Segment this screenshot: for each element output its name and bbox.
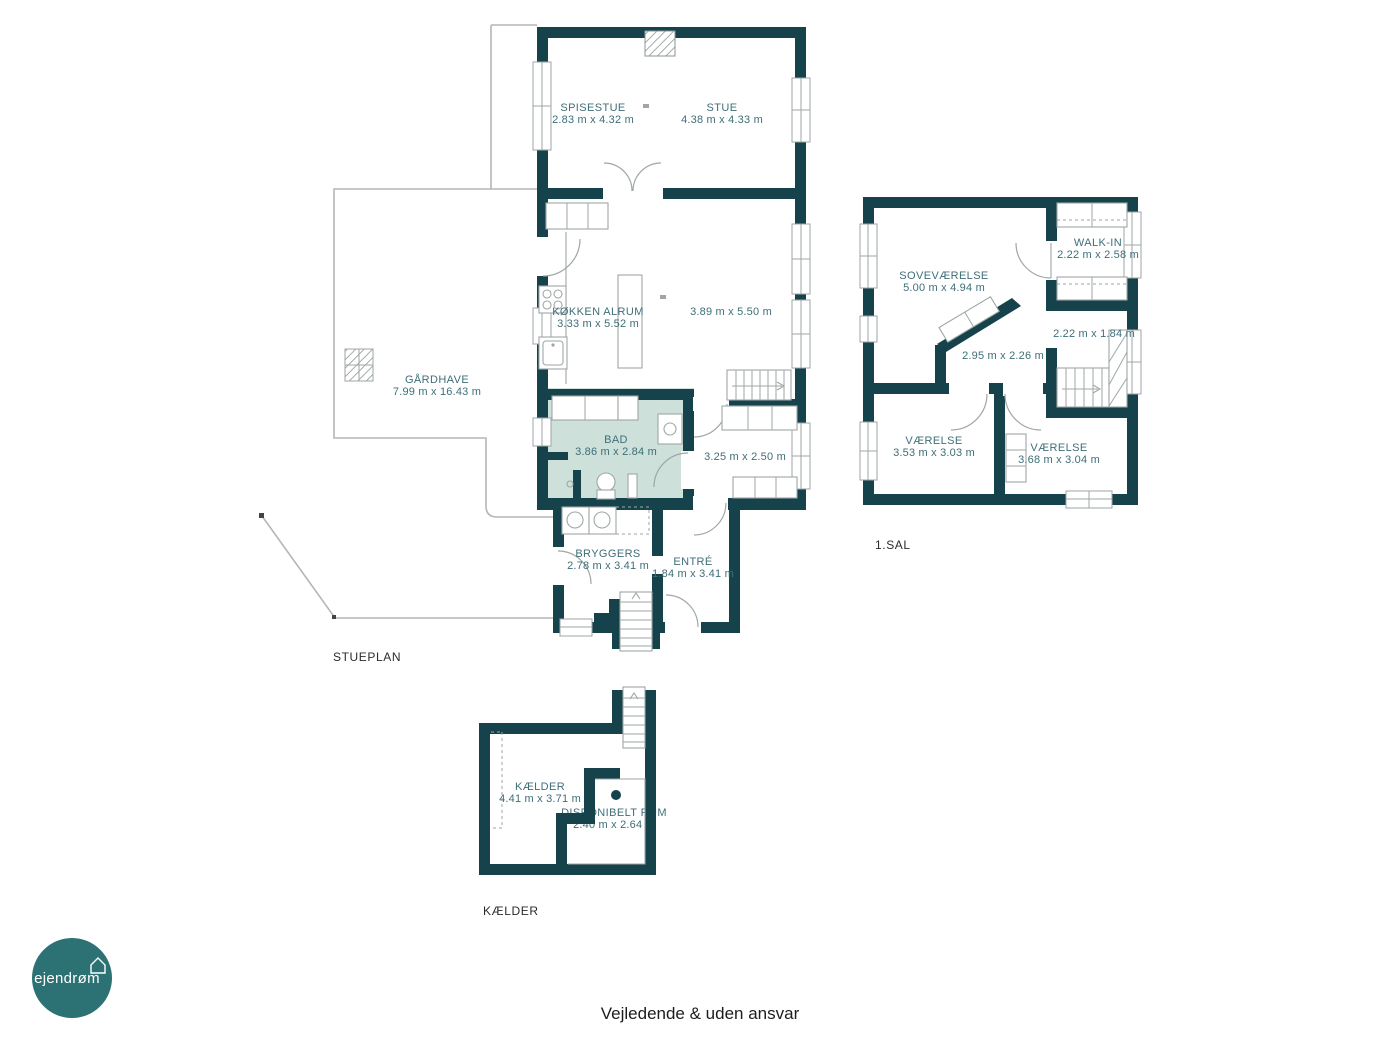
chimney [645,31,675,56]
boundary-point [259,513,264,518]
room-name: SOVEVÆRELSE [899,270,988,282]
wall-tick [613,392,617,396]
wall-tick [546,866,550,870]
room-label-spisestue: SPISESTUE2.83 m x 4.32 m [552,102,634,126]
room-label-vaerelse-2: VÆRELSE3.68 m x 3.04 m [1018,442,1100,466]
room-name: GÅRDHAVE [405,373,469,386]
room-name: VÆRELSE [905,435,962,447]
room-label-vaerelse-1: VÆRELSE3.53 m x 3.03 m [893,435,975,459]
room-dims: 4.41 m x 3.71 m [499,793,581,805]
room-name: SPISESTUE [560,102,625,114]
stairs-up-stueplan [727,370,791,400]
room-label-alrum: 3.89 m x 5.50 m [690,306,772,318]
room-dims: 4.38 m x 4.33 m [681,114,763,126]
room-name: WALK-IN [1074,237,1122,249]
room-dims: 2.95 m x 2.26 m [962,350,1044,362]
radiator-mark [643,104,649,108]
room-name: VÆRELSE [1030,442,1087,454]
room-name: ENTRÉ [673,555,712,568]
room-label-sovevaerelse: SOVEVÆRELSE5.00 m x 4.94 m [899,270,988,294]
stairs-1sal [1057,330,1127,407]
room-label-koekken: KØKKEN ALRUM3.33 m x 5.52 m [552,306,644,330]
room-dims: 2.22 m x 1.84 m [1053,328,1135,340]
room-label-hall: 3.25 m x 2.50 m [704,451,786,463]
radiator-mark [660,295,666,299]
room-label-junction: 2.95 m x 2.26 m [962,350,1044,362]
room-name: BRYGGERS [575,548,640,560]
logo-text: ejendrøm [34,970,100,987]
room-dims: 2.83 m x 4.32 m [552,114,634,126]
floor-title-kaelder: KÆLDER [483,904,539,918]
stairs-down-entre [620,592,652,651]
boundary-point [332,615,336,619]
room-dims: 1.84 m x 3.41 m [652,568,734,580]
room-dims: 2.22 m x 2.58 m [1057,249,1139,261]
wall-tick [591,30,595,34]
room-dims: 3.89 m x 5.50 m [690,306,772,318]
floorplan-drawing: DISPONIBELT RUM 2.40 m x 2.64 m SPISE [0,0,1400,1050]
walkin-closet-top [1057,203,1127,227]
room-dims: 7.99 m x 16.43 m [393,386,481,398]
room-name: KÆLDER [515,781,565,793]
floor-kaelder: DISPONIBELT RUM 2.40 m x 2.64 m [479,687,667,875]
room-dims: 2.78 m x 3.41 m [567,560,649,572]
property-boundary [259,25,556,619]
wall-tick [1057,497,1061,501]
room-label-bryggers: BRYGGERS2.78 m x 3.41 m [567,548,649,572]
room-dims: 3.68 m x 3.04 m [1018,454,1100,466]
room-label-gaardhave: GÅRDHAVE7.99 m x 16.43 m [393,373,481,398]
laundry-appliances [562,507,649,534]
room-label-landing: 2.22 m x 1.84 m [1053,328,1135,340]
logo: ejendrøm [32,938,112,1018]
wall-tick [932,497,936,501]
column-dot [611,790,621,800]
floor-title-stueplan: STUEPLAN [333,650,401,664]
footer-disclaimer: Vejledende & uden ansvar [601,1004,800,1023]
walkin-closet-bottom [1057,277,1127,300]
kitchen-sink [539,337,567,369]
room-label-kaelder: KÆLDER4.41 m x 3.71 m [499,781,581,805]
room-dims: 5.00 m x 4.94 m [903,282,985,294]
wall-tick [718,30,722,34]
stairs-kaelder [623,687,645,748]
room-dims: 3.33 m x 5.52 m [557,318,639,330]
room-name: STUE [707,102,738,114]
floor-title-1sal: 1.SAL [875,538,911,552]
garden-table [345,349,373,381]
room-dims: 3.86 m x 2.84 m [575,446,657,458]
room-dims: 3.53 m x 3.03 m [893,447,975,459]
wall-tick [942,200,946,204]
room-name: BAD [604,434,628,446]
room-name: KØKKEN ALRUM [552,306,644,318]
room-label-stue: STUE4.38 m x 4.33 m [681,102,763,126]
floorplan-page: DISPONIBELT RUM 2.40 m x 2.64 m SPISE [0,0,1400,1050]
room-dims: 3.25 m x 2.50 m [704,451,786,463]
storage-dashed [491,732,502,828]
